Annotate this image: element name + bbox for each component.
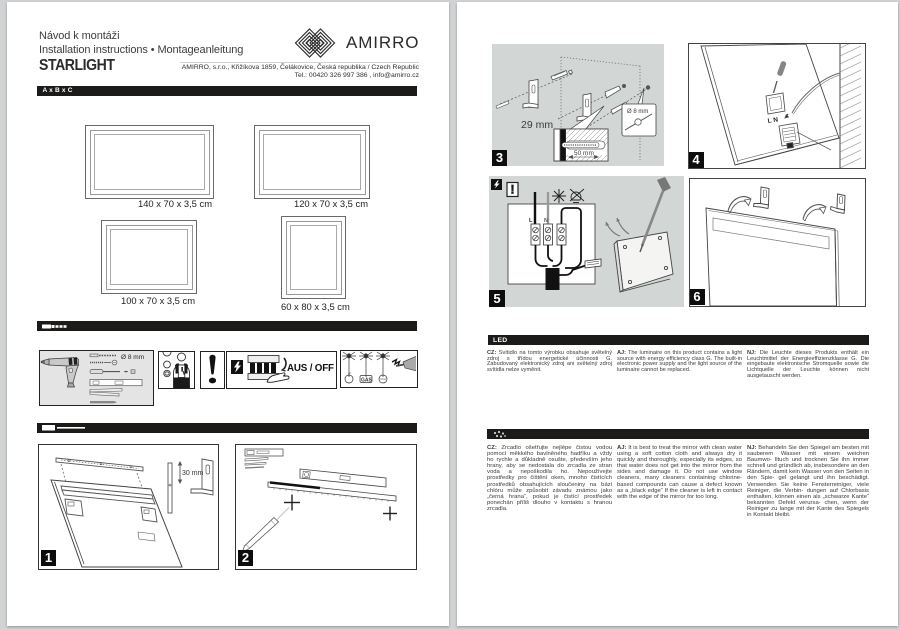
svg-text:29 mm: 29 mm: [521, 119, 553, 131]
svg-text:AUS / OFF: AUS / OFF: [287, 363, 334, 374]
svg-text:!: !: [511, 183, 515, 197]
svg-text:GAS: GAS: [361, 378, 373, 384]
svg-text:Ø 8 mm: Ø 8 mm: [121, 354, 144, 361]
svg-text:30 mm: 30 mm: [182, 470, 204, 477]
svg-text:N: N: [544, 218, 548, 224]
svg-text:Ø 8 mm: Ø 8 mm: [627, 109, 648, 115]
svg-text:50 mm: 50 mm: [574, 150, 594, 157]
